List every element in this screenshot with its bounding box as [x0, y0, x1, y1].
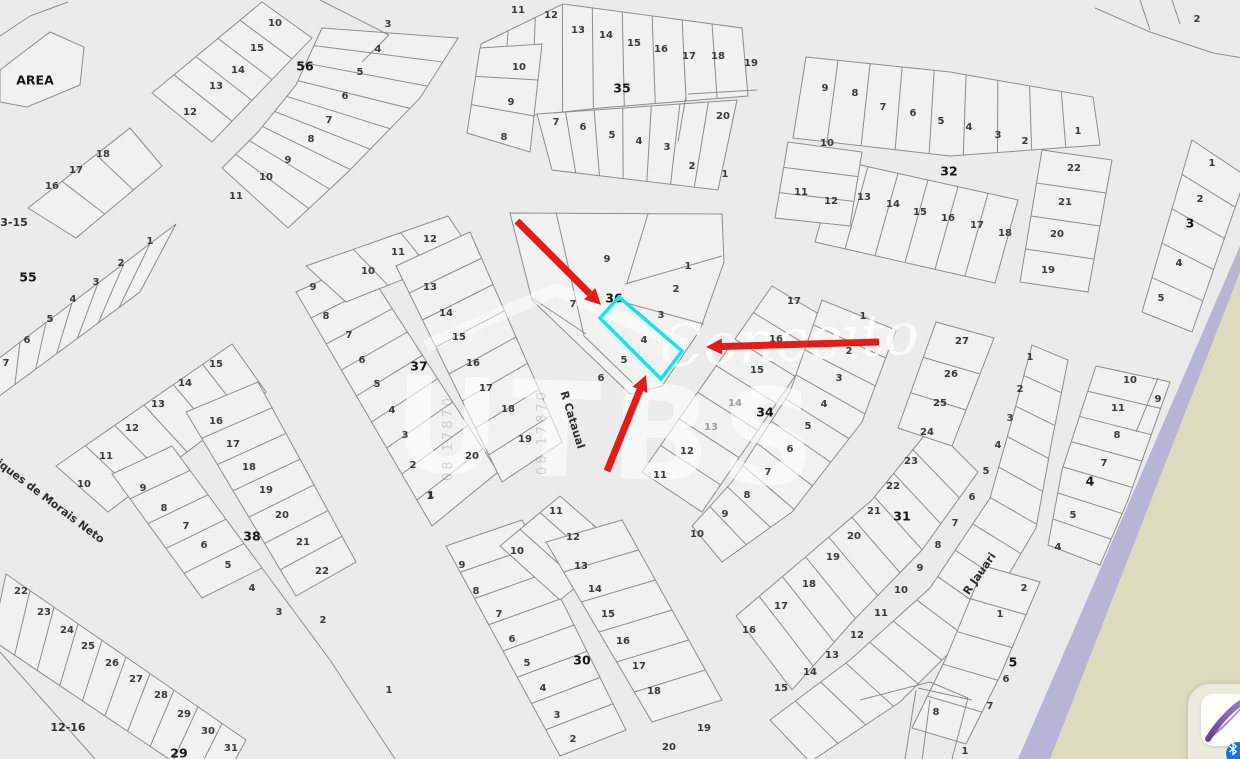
- svg-text:17: 17: [970, 220, 984, 231]
- svg-text:2: 2: [1022, 136, 1029, 147]
- svg-text:26: 26: [105, 658, 119, 669]
- svg-text:6: 6: [24, 335, 31, 346]
- svg-text:12: 12: [183, 107, 197, 118]
- svg-text:7: 7: [952, 518, 959, 529]
- svg-text:17: 17: [632, 661, 646, 672]
- svg-text:18: 18: [647, 686, 661, 697]
- svg-text:11: 11: [549, 506, 563, 517]
- svg-text:11: 11: [1111, 403, 1125, 414]
- svg-text:1: 1: [1027, 352, 1034, 363]
- svg-text:28: 28: [154, 690, 168, 701]
- svg-text:17: 17: [774, 601, 788, 612]
- svg-text:27: 27: [955, 336, 969, 347]
- svg-text:14: 14: [803, 667, 817, 678]
- svg-text:13: 13: [574, 561, 588, 572]
- svg-text:13: 13: [209, 81, 223, 92]
- svg-text:15: 15: [774, 683, 788, 694]
- svg-text:16: 16: [941, 213, 955, 224]
- svg-text:25: 25: [933, 398, 947, 409]
- svg-text:14: 14: [439, 308, 453, 319]
- block-number-label: AREA: [16, 73, 54, 88]
- svg-text:12: 12: [544, 10, 558, 21]
- svg-text:16: 16: [616, 636, 630, 647]
- svg-text:5: 5: [374, 379, 381, 390]
- svg-text:2: 2: [1197, 194, 1204, 205]
- svg-text:1: 1: [427, 491, 434, 502]
- svg-text:21: 21: [1058, 197, 1072, 208]
- svg-text:18: 18: [242, 462, 256, 473]
- svg-text:8: 8: [744, 490, 751, 501]
- svg-text:8: 8: [852, 88, 859, 99]
- svg-text:5: 5: [621, 355, 628, 366]
- svg-text:26: 26: [944, 369, 958, 380]
- svg-text:3: 3: [93, 277, 100, 288]
- svg-text:19: 19: [697, 723, 711, 734]
- svg-text:11: 11: [511, 5, 525, 16]
- svg-text:08 17870: 08 17870: [441, 395, 456, 481]
- svg-text:10: 10: [268, 18, 282, 29]
- purple-swoosh-draw-icon: [1201, 694, 1240, 746]
- svg-text:2: 2: [689, 161, 696, 172]
- svg-text:12: 12: [125, 423, 139, 434]
- svg-text:9: 9: [459, 560, 466, 571]
- svg-text:2: 2: [320, 615, 327, 626]
- svg-text:14: 14: [728, 398, 742, 409]
- svg-text:8: 8: [1114, 430, 1121, 441]
- svg-text:4: 4: [821, 399, 828, 410]
- svg-text:5: 5: [1070, 510, 1077, 521]
- svg-text:14: 14: [231, 65, 245, 76]
- svg-text:9: 9: [604, 254, 611, 265]
- svg-text:18: 18: [711, 51, 725, 62]
- svg-text:21: 21: [867, 506, 881, 517]
- svg-text:3: 3: [664, 142, 671, 153]
- svg-text:16: 16: [742, 625, 756, 636]
- svg-text:3: 3: [402, 430, 409, 441]
- svg-text:11: 11: [391, 247, 405, 258]
- svg-text:4: 4: [375, 44, 382, 55]
- svg-text:4: 4: [636, 136, 643, 147]
- svg-text:25: 25: [81, 641, 95, 652]
- svg-text:4: 4: [249, 583, 256, 594]
- svg-text:5: 5: [524, 658, 531, 669]
- svg-text:19: 19: [259, 485, 273, 496]
- block-number-label: 30: [573, 653, 591, 668]
- svg-text:12: 12: [423, 234, 437, 245]
- block-number-label: 4: [1086, 474, 1095, 489]
- svg-text:29: 29: [177, 709, 191, 720]
- svg-text:5: 5: [225, 560, 232, 571]
- block-number-label: 5: [1009, 655, 1018, 670]
- svg-text:7: 7: [880, 102, 887, 113]
- street-name-label: 3-15: [0, 216, 28, 229]
- svg-text:20: 20: [465, 451, 479, 462]
- svg-text:12: 12: [850, 630, 864, 641]
- svg-text:14: 14: [178, 378, 192, 389]
- svg-text:13: 13: [423, 282, 437, 293]
- svg-text:20: 20: [716, 111, 730, 122]
- svg-text:9: 9: [722, 509, 729, 520]
- svg-text:1: 1: [1075, 126, 1082, 137]
- svg-text:2: 2: [846, 346, 853, 357]
- svg-text:10: 10: [361, 266, 375, 277]
- svg-text:9: 9: [310, 282, 317, 293]
- svg-text:4: 4: [995, 440, 1002, 451]
- bluetooth-button[interactable]: [1226, 742, 1240, 759]
- svg-text:7: 7: [553, 117, 560, 128]
- svg-text:6: 6: [580, 122, 587, 133]
- svg-text:1: 1: [147, 236, 154, 247]
- svg-text:8: 8: [308, 134, 315, 145]
- block-number-label: 35: [613, 81, 630, 96]
- svg-text:10: 10: [259, 172, 273, 183]
- draw-tool-button[interactable]: [1201, 694, 1240, 746]
- svg-text:23: 23: [37, 607, 51, 618]
- svg-text:13: 13: [857, 192, 871, 203]
- svg-text:17: 17: [226, 439, 240, 450]
- svg-text:3: 3: [1007, 413, 1014, 424]
- svg-text:22: 22: [14, 586, 28, 597]
- svg-text:16: 16: [209, 416, 223, 427]
- svg-text:17: 17: [69, 165, 83, 176]
- svg-text:4: 4: [389, 405, 396, 416]
- svg-text:10: 10: [894, 585, 908, 596]
- svg-text:12: 12: [824, 196, 838, 207]
- svg-text:20: 20: [1050, 229, 1064, 240]
- svg-text:17: 17: [682, 51, 696, 62]
- svg-text:3: 3: [658, 310, 665, 321]
- svg-text:8: 8: [935, 540, 942, 551]
- block-number-label: 32: [940, 164, 957, 179]
- bluetooth-icon: [1226, 742, 1240, 756]
- svg-text:9: 9: [508, 97, 515, 108]
- svg-text:4: 4: [641, 335, 648, 346]
- map-tools-panel: [1188, 684, 1240, 759]
- block-number-label: 31: [893, 509, 910, 524]
- svg-text:2: 2: [118, 258, 125, 269]
- svg-text:27: 27: [129, 674, 143, 685]
- svg-text:3: 3: [554, 710, 561, 721]
- svg-text:24: 24: [920, 427, 934, 438]
- svg-text:16: 16: [466, 358, 480, 369]
- svg-text:19: 19: [1041, 265, 1055, 276]
- svg-text:3: 3: [995, 130, 1002, 141]
- svg-text:3: 3: [385, 19, 392, 30]
- svg-text:2: 2: [1017, 384, 1024, 395]
- svg-text:1: 1: [860, 311, 867, 322]
- svg-text:1: 1: [962, 746, 969, 757]
- svg-text:31: 31: [224, 743, 238, 754]
- svg-text:6: 6: [598, 373, 605, 384]
- svg-text:10: 10: [1123, 375, 1137, 386]
- svg-text:19: 19: [518, 434, 532, 445]
- svg-text:5: 5: [609, 130, 616, 141]
- svg-text:7: 7: [570, 299, 577, 310]
- svg-text:24: 24: [60, 625, 74, 636]
- svg-text:3: 3: [276, 607, 283, 618]
- svg-text:8: 8: [323, 311, 330, 322]
- red-arrow: [722, 342, 879, 347]
- svg-text:11: 11: [794, 187, 808, 198]
- svg-text:11: 11: [874, 608, 888, 619]
- svg-text:16: 16: [654, 44, 668, 55]
- svg-text:8: 8: [933, 707, 940, 718]
- svg-text:6: 6: [509, 634, 516, 645]
- svg-text:14: 14: [588, 584, 602, 595]
- svg-text:11: 11: [229, 191, 243, 202]
- block-number-label: 29: [170, 746, 187, 759]
- svg-text:5: 5: [1158, 293, 1165, 304]
- svg-text:6: 6: [910, 108, 917, 119]
- block-number-label: 56: [296, 59, 314, 74]
- svg-text:4: 4: [1055, 542, 1062, 553]
- parcel-map-svg: ConceitoUTBS®08 1787008 1787010151413123…: [0, 0, 1240, 759]
- svg-text:6: 6: [1003, 674, 1010, 685]
- svg-text:1: 1: [722, 169, 729, 180]
- svg-text:6: 6: [359, 355, 366, 366]
- block-number-label: 38: [243, 529, 260, 544]
- svg-text:18: 18: [501, 404, 515, 415]
- svg-text:6: 6: [201, 540, 208, 551]
- svg-text:22: 22: [315, 566, 329, 577]
- svg-text:7: 7: [765, 467, 772, 478]
- svg-text:21: 21: [296, 537, 310, 548]
- svg-text:5: 5: [805, 421, 812, 432]
- svg-text:13: 13: [571, 25, 585, 36]
- svg-text:7: 7: [3, 358, 10, 369]
- svg-text:18: 18: [802, 579, 816, 590]
- svg-text:8: 8: [501, 132, 508, 143]
- svg-text:9: 9: [917, 563, 924, 574]
- svg-text:4: 4: [70, 294, 77, 305]
- svg-text:9: 9: [822, 83, 829, 94]
- svg-text:20: 20: [847, 531, 861, 542]
- svg-text:10: 10: [690, 529, 704, 540]
- svg-text:®: ®: [751, 387, 766, 405]
- svg-text:8: 8: [161, 503, 168, 514]
- svg-text:2: 2: [1194, 14, 1201, 25]
- svg-text:7: 7: [496, 609, 503, 620]
- svg-text:15: 15: [627, 38, 641, 49]
- svg-text:19: 19: [826, 552, 840, 563]
- svg-text:14: 14: [599, 30, 613, 41]
- block-number-label: 34: [756, 405, 774, 420]
- svg-text:15: 15: [750, 365, 764, 376]
- svg-text:7: 7: [987, 701, 994, 712]
- svg-text:17: 17: [479, 383, 493, 394]
- svg-text:9: 9: [1155, 394, 1162, 405]
- svg-text:15: 15: [601, 609, 615, 620]
- svg-text:10: 10: [512, 62, 526, 73]
- svg-text:1: 1: [685, 261, 692, 272]
- svg-text:10: 10: [820, 138, 834, 149]
- svg-text:7: 7: [1101, 458, 1108, 469]
- svg-text:15: 15: [913, 207, 927, 218]
- svg-text:4: 4: [966, 122, 973, 133]
- svg-text:20: 20: [275, 510, 289, 521]
- svg-text:12: 12: [680, 446, 694, 457]
- svg-text:8: 8: [473, 586, 480, 597]
- svg-text:3: 3: [836, 373, 843, 384]
- svg-text:30: 30: [201, 726, 215, 737]
- svg-text:15: 15: [452, 332, 466, 343]
- svg-text:1: 1: [386, 685, 393, 696]
- svg-text:1: 1: [1209, 158, 1216, 169]
- svg-text:2: 2: [410, 460, 417, 471]
- svg-text:5: 5: [47, 314, 54, 325]
- cadastral-map-canvas[interactable]: ConceitoUTBS®08 1787008 1787010151413123…: [0, 0, 1240, 759]
- svg-text:17: 17: [787, 296, 801, 307]
- svg-text:6: 6: [342, 91, 349, 102]
- svg-text:18: 18: [998, 228, 1012, 239]
- svg-text:22: 22: [886, 481, 900, 492]
- svg-text:15: 15: [209, 359, 223, 370]
- svg-text:19: 19: [744, 58, 758, 69]
- svg-text:5: 5: [357, 67, 364, 78]
- svg-text:4: 4: [1176, 258, 1183, 269]
- block-number-label: 37: [410, 359, 427, 374]
- svg-text:11: 11: [653, 470, 667, 481]
- svg-text:4: 4: [540, 683, 547, 694]
- block-number-label: 55: [19, 270, 36, 285]
- svg-text:20: 20: [662, 742, 676, 753]
- svg-text:2: 2: [1021, 583, 1028, 594]
- svg-text:10: 10: [77, 479, 91, 490]
- svg-text:22: 22: [1067, 163, 1081, 174]
- svg-text:6: 6: [969, 492, 976, 503]
- svg-text:13: 13: [151, 399, 165, 410]
- svg-text:6: 6: [787, 444, 794, 455]
- svg-text:14: 14: [886, 199, 900, 210]
- svg-text:5: 5: [983, 466, 990, 477]
- svg-text:7: 7: [326, 115, 333, 126]
- svg-text:12: 12: [566, 532, 580, 543]
- svg-text:1: 1: [997, 609, 1004, 620]
- svg-text:2: 2: [570, 734, 577, 745]
- svg-text:18: 18: [96, 149, 110, 160]
- svg-text:7: 7: [346, 330, 353, 341]
- svg-text:10: 10: [510, 546, 524, 557]
- svg-text:13: 13: [825, 650, 839, 661]
- svg-text:7: 7: [183, 521, 190, 532]
- block-number-label: 3: [1186, 216, 1195, 231]
- svg-text:08 17870: 08 17870: [535, 389, 550, 475]
- svg-text:23: 23: [904, 456, 918, 467]
- svg-text:16: 16: [45, 181, 59, 192]
- svg-text:11: 11: [99, 451, 113, 462]
- svg-text:13: 13: [704, 422, 718, 433]
- svg-text:15: 15: [250, 43, 264, 54]
- svg-text:2: 2: [673, 284, 680, 295]
- svg-text:9: 9: [285, 155, 292, 166]
- street-name-label: 12-16: [50, 721, 86, 734]
- svg-text:5: 5: [938, 116, 945, 127]
- svg-text:9: 9: [140, 483, 147, 494]
